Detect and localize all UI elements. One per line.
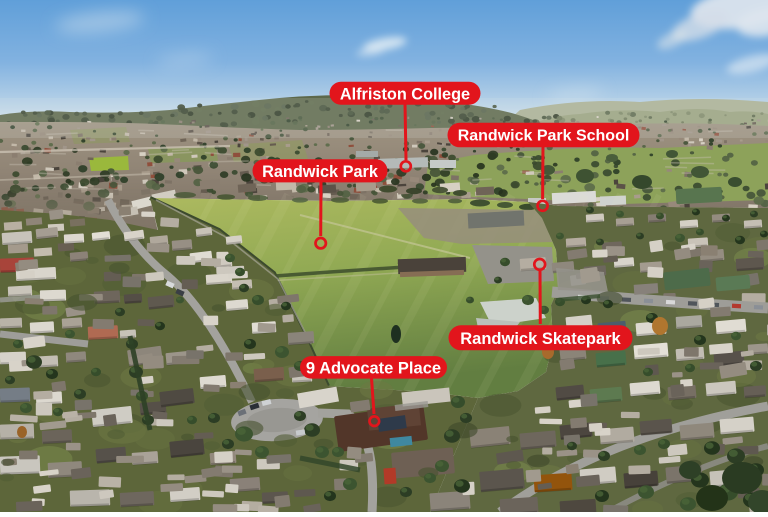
- svg-text:Randwick Park School: Randwick Park School: [458, 128, 630, 145]
- svg-text:9 Advocate Place: 9 Advocate Place: [306, 359, 441, 377]
- svg-text:Randwick Park: Randwick Park: [262, 163, 379, 181]
- svg-text:Randwick Skatepark: Randwick Skatepark: [460, 330, 621, 348]
- svg-text:Alfriston College: Alfriston College: [340, 85, 470, 103]
